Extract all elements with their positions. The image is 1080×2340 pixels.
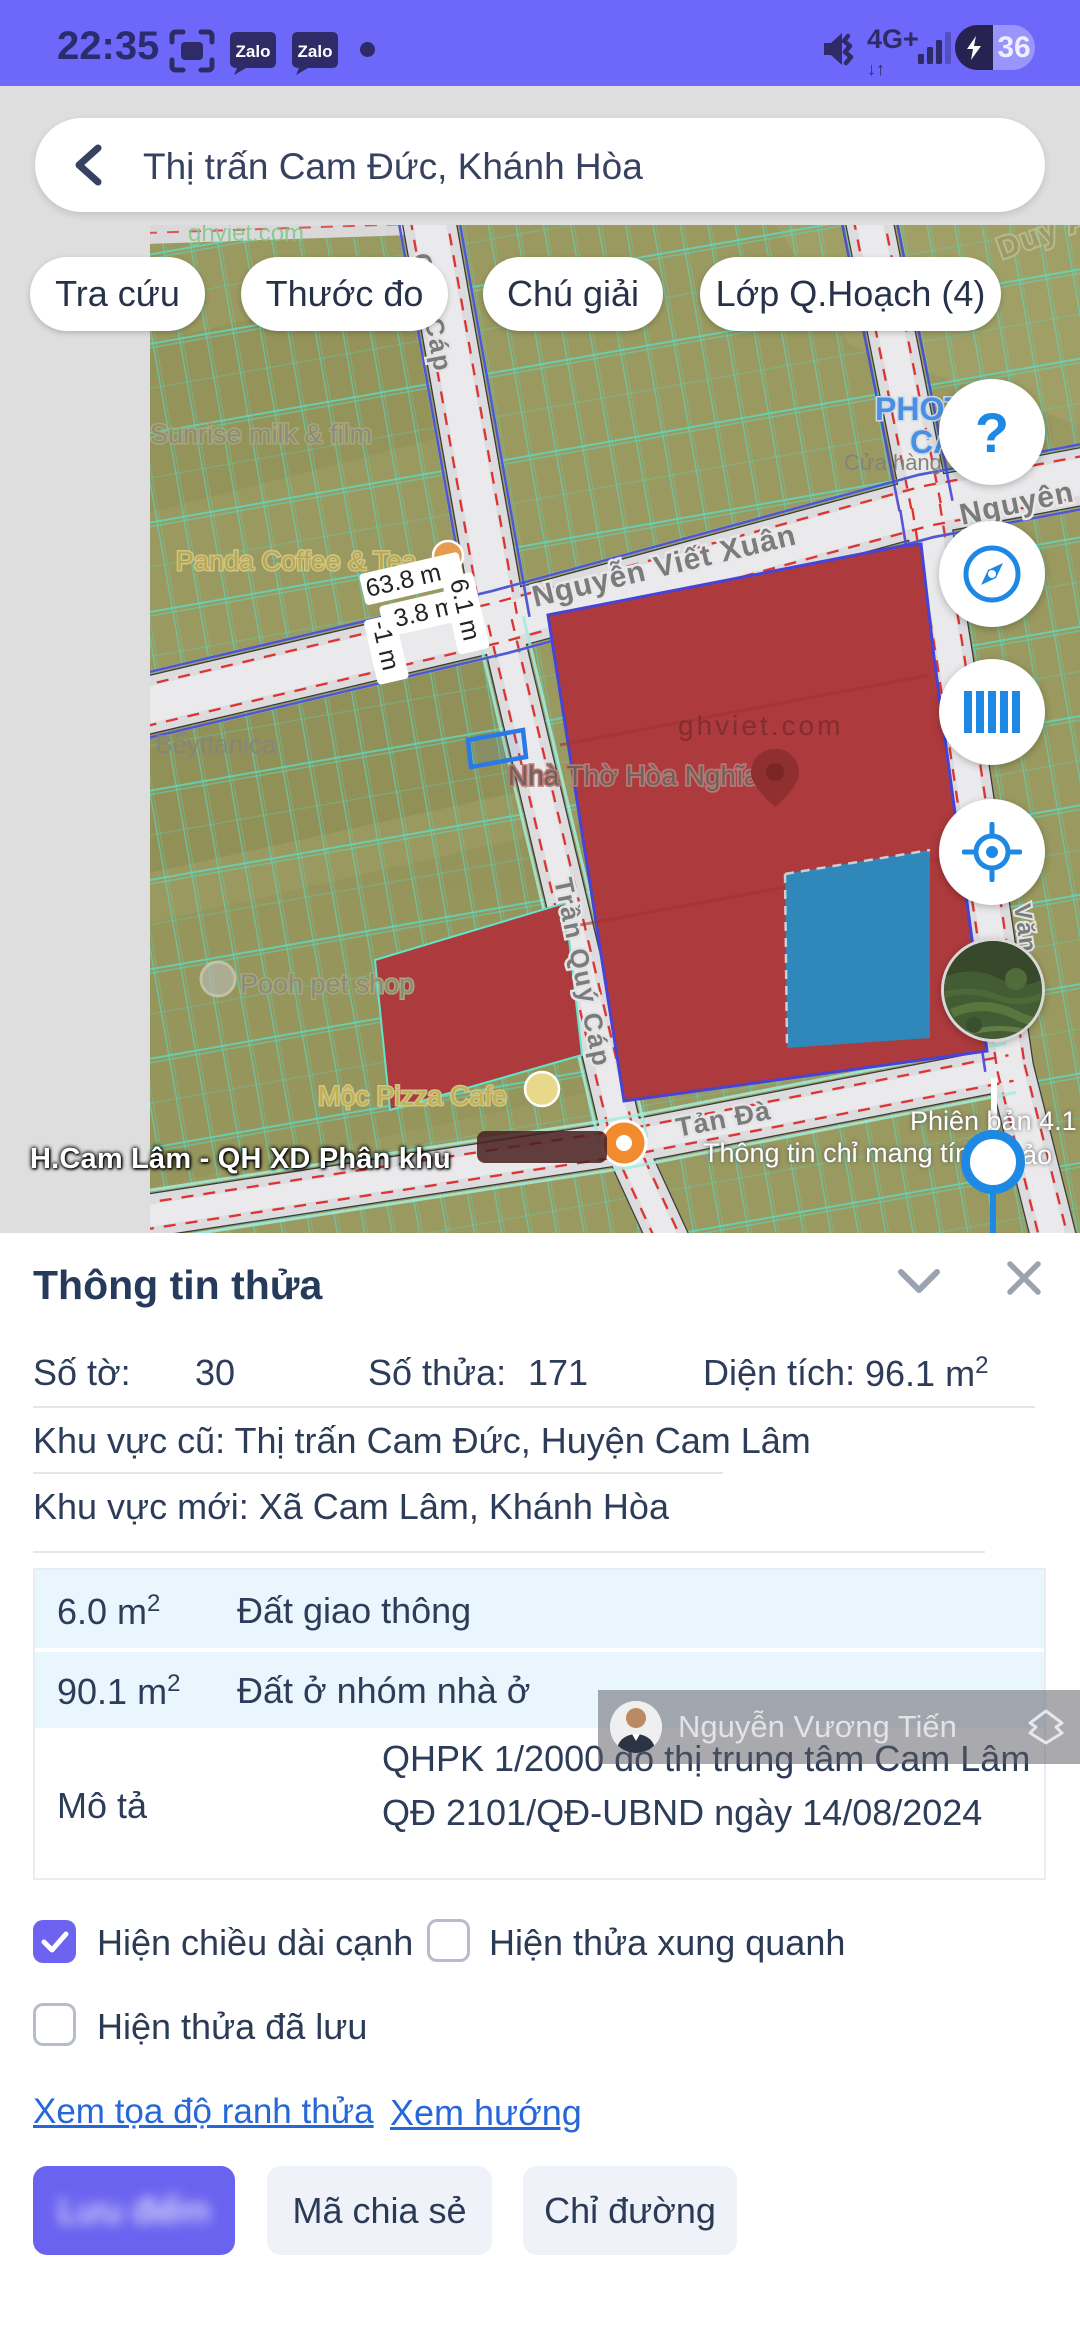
svg-text:Zalo: Zalo [236,42,271,61]
svg-text:ghviet.com: ghviet.com [678,710,843,741]
svg-text:l Bểyttanica: l Bểyttanica [150,729,277,759]
svg-text:Zalo: Zalo [298,42,333,61]
svg-text:Cửa hàng: Cửa hàng [844,450,942,475]
svg-text:Sunrise milk & film: Sunrise milk & film [150,419,372,449]
svg-text:ghviet.com: ghviet.com [188,225,304,247]
svg-text:Pooh pet shop: Pooh pet shop [240,969,414,999]
svg-text:Nhà Thờ Hòa Nghĩa: Nhà Thờ Hòa Nghĩa [508,760,760,791]
svg-text:Mộc Pizza Cafe: Mộc Pizza Cafe [318,1081,507,1111]
